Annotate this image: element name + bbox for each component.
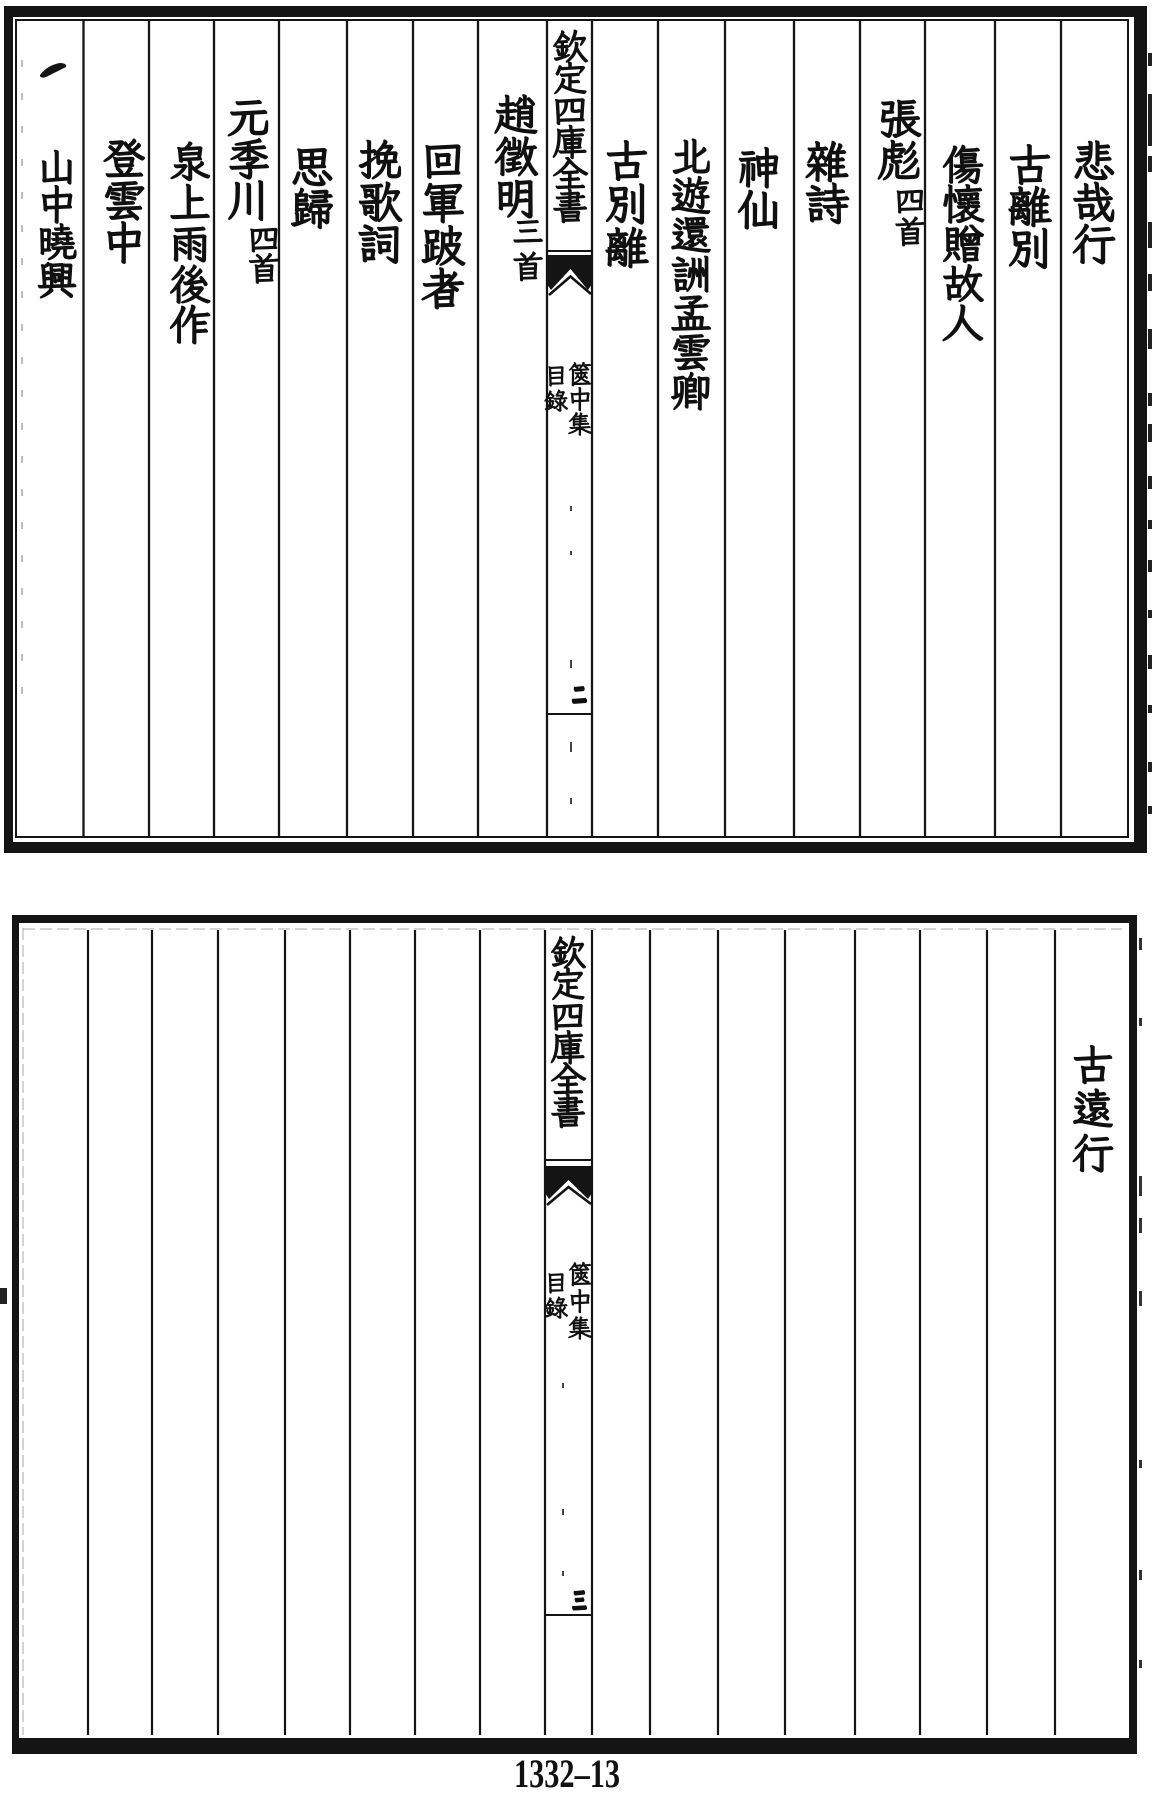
svg-text:1332–13: 1332–13 bbox=[514, 1751, 620, 1794]
